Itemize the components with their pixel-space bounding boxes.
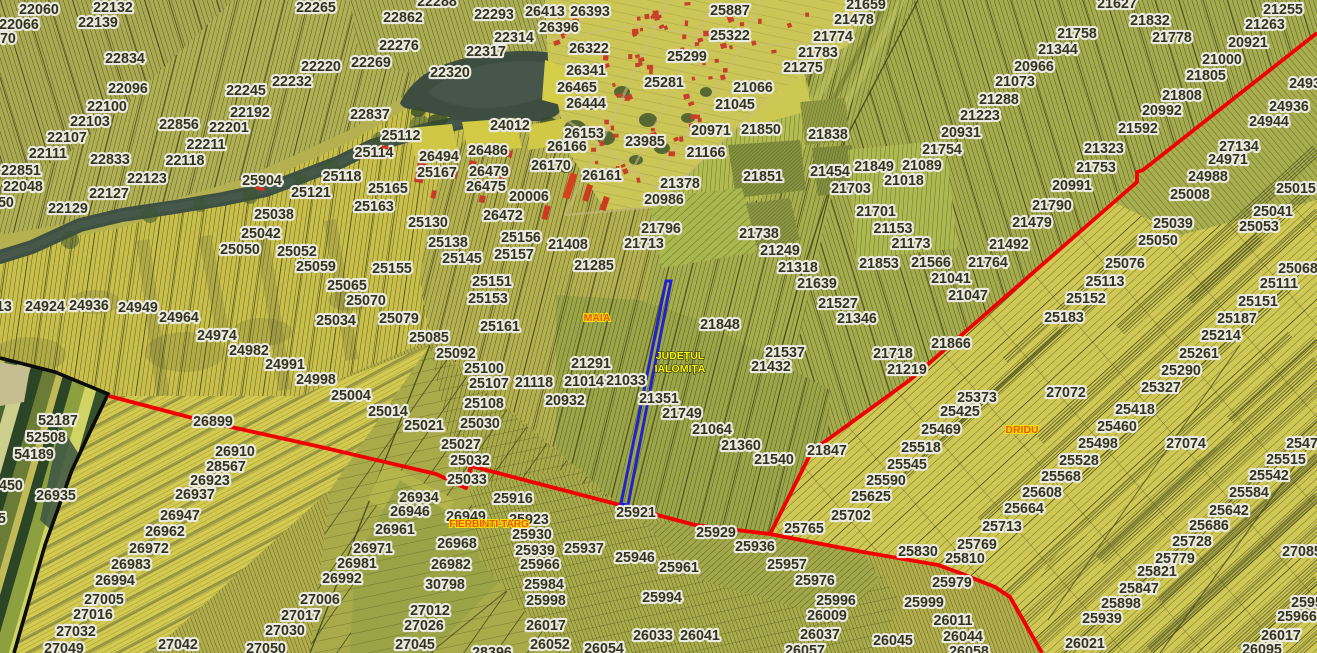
- svg-text:25418: 25418: [1115, 402, 1155, 418]
- svg-text:25929: 25929: [696, 525, 736, 541]
- svg-text:21118: 21118: [515, 375, 553, 391]
- svg-text:DRIDU: DRIDU: [1005, 424, 1038, 436]
- svg-text:25996: 25996: [816, 593, 856, 609]
- svg-text:26161: 26161: [582, 168, 622, 184]
- svg-text:26479: 26479: [469, 164, 509, 180]
- svg-text:25027: 25027: [441, 437, 481, 453]
- svg-text:22837: 22837: [350, 107, 390, 123]
- svg-text:26972: 26972: [129, 541, 169, 557]
- svg-text:22220: 22220: [301, 59, 341, 75]
- svg-text:26486: 26486: [468, 143, 508, 159]
- svg-text:22232: 22232: [272, 74, 312, 90]
- svg-text:25998: 25998: [526, 593, 566, 609]
- svg-text:25052: 25052: [277, 244, 317, 260]
- svg-text:21847: 21847: [807, 443, 847, 459]
- svg-text:22127: 22127: [89, 186, 129, 202]
- svg-text:25713: 25713: [982, 519, 1022, 535]
- svg-text:25821: 25821: [1137, 564, 1177, 580]
- svg-text:22111: 22111: [29, 146, 67, 162]
- svg-text:25590: 25590: [866, 473, 906, 489]
- svg-text:21249: 21249: [760, 243, 800, 259]
- svg-text:21764: 21764: [968, 255, 1008, 271]
- svg-text:25156: 25156: [501, 230, 541, 246]
- svg-text:24974: 24974: [197, 328, 237, 344]
- svg-text:24913: 24913: [0, 299, 12, 315]
- svg-text:22107: 22107: [47, 130, 87, 146]
- svg-text:22317: 22317: [466, 44, 506, 60]
- svg-text:22293: 22293: [474, 7, 514, 23]
- svg-text:21351: 21351: [639, 391, 679, 407]
- svg-text:25976: 25976: [795, 573, 835, 589]
- svg-text:25152: 25152: [1066, 291, 1106, 307]
- svg-text:25686: 25686: [1189, 518, 1229, 534]
- svg-text:26971: 26971: [353, 541, 393, 557]
- svg-text:24944: 24944: [1249, 114, 1289, 130]
- svg-text:25642: 25642: [1209, 503, 1249, 519]
- svg-text:26937: 26937: [175, 487, 215, 503]
- svg-text:27030: 27030: [265, 623, 305, 639]
- svg-text:25151: 25151: [472, 274, 512, 290]
- svg-text:21738: 21738: [739, 226, 779, 242]
- svg-text:22100: 22100: [87, 99, 127, 115]
- svg-text:24971: 24971: [1208, 152, 1248, 168]
- svg-text:27085: 27085: [1282, 544, 1317, 560]
- svg-text:25290: 25290: [1161, 363, 1201, 379]
- svg-text:21790: 21790: [1032, 198, 1072, 214]
- svg-text:22048: 22048: [3, 179, 43, 195]
- svg-text:24998: 24998: [296, 372, 336, 388]
- svg-text:21360: 21360: [721, 438, 761, 454]
- svg-text:25608: 25608: [1022, 485, 1062, 501]
- svg-text:20991: 20991: [1052, 178, 1092, 194]
- svg-text:20971: 20971: [691, 123, 731, 139]
- svg-text:26992: 26992: [322, 571, 362, 587]
- svg-text:21492: 21492: [989, 237, 1029, 253]
- svg-text:25034: 25034: [316, 313, 356, 329]
- svg-text:52187: 52187: [38, 413, 78, 429]
- svg-text:21778: 21778: [1152, 30, 1192, 46]
- svg-text:21478: 21478: [834, 12, 874, 28]
- svg-text:25163: 25163: [354, 199, 394, 215]
- svg-text:21838: 21838: [808, 127, 848, 143]
- svg-text:21018: 21018: [884, 173, 924, 189]
- svg-text:21832: 21832: [1130, 13, 1170, 29]
- svg-text:22060: 22060: [19, 2, 59, 18]
- svg-text:27005: 27005: [84, 592, 124, 608]
- svg-text:21479: 21479: [1012, 215, 1052, 231]
- svg-text:MAIA: MAIA: [584, 312, 611, 324]
- svg-text:21047: 21047: [948, 288, 988, 304]
- svg-text:20932: 20932: [545, 393, 585, 409]
- svg-text:21866: 21866: [931, 336, 971, 352]
- svg-text:25145: 25145: [442, 251, 482, 267]
- svg-text:24924: 24924: [25, 299, 65, 315]
- svg-text:21219: 21219: [887, 362, 927, 378]
- svg-text:27074: 27074: [1166, 436, 1206, 452]
- svg-text:22862: 22862: [383, 10, 423, 26]
- svg-text:22269: 22269: [351, 55, 391, 71]
- svg-text:25030: 25030: [460, 416, 500, 432]
- svg-text:26021: 26021: [1065, 636, 1105, 652]
- svg-text:21288: 21288: [979, 92, 1019, 108]
- svg-text:25625: 25625: [851, 489, 891, 505]
- svg-text:21527: 21527: [818, 296, 858, 312]
- svg-text:30798: 30798: [425, 577, 465, 593]
- svg-text:25887: 25887: [710, 3, 750, 19]
- svg-text:22276: 22276: [379, 38, 419, 54]
- svg-text:25966: 25966: [1277, 609, 1317, 625]
- svg-text:21275: 21275: [783, 60, 823, 76]
- svg-text:21045: 21045: [715, 97, 755, 113]
- svg-text:24949: 24949: [118, 300, 158, 316]
- svg-text:25469: 25469: [921, 422, 961, 438]
- svg-text:22211: 22211: [187, 137, 226, 153]
- svg-text:27016: 27016: [73, 607, 113, 623]
- svg-text:21808: 21808: [1162, 88, 1202, 104]
- svg-text:25157: 25157: [494, 247, 534, 263]
- svg-text:27049: 27049: [44, 641, 84, 653]
- svg-text:33450: 33450: [0, 478, 23, 494]
- svg-text:21285: 21285: [574, 258, 614, 274]
- svg-text:25151: 25151: [1238, 294, 1278, 310]
- svg-text:24982: 24982: [229, 343, 269, 359]
- svg-text:26475: 26475: [466, 179, 506, 195]
- svg-text:21805: 21805: [1186, 68, 1226, 84]
- svg-text:20992: 20992: [1142, 103, 1182, 119]
- svg-text:22118: 22118: [166, 153, 205, 169]
- svg-text:26044: 26044: [943, 629, 983, 645]
- svg-text:54189: 54189: [14, 447, 54, 463]
- svg-text:24936: 24936: [1269, 99, 1309, 115]
- svg-text:22070: 22070: [0, 31, 16, 47]
- svg-text:22096: 22096: [108, 81, 148, 97]
- svg-text:22856: 22856: [159, 117, 199, 133]
- svg-text:25664: 25664: [1004, 501, 1044, 517]
- svg-text:25167: 25167: [417, 165, 457, 181]
- svg-text:21774: 21774: [813, 29, 853, 45]
- svg-text:22851: 22851: [1, 163, 41, 179]
- svg-text:21318: 21318: [778, 260, 818, 276]
- svg-text:27045: 27045: [395, 637, 435, 653]
- svg-text:25070: 25070: [346, 293, 386, 309]
- svg-text:25999: 25999: [904, 595, 944, 611]
- svg-text:25059: 25059: [296, 259, 336, 275]
- svg-text:25702: 25702: [831, 508, 871, 524]
- svg-text:26041: 26041: [680, 628, 720, 644]
- svg-text:25155: 25155: [372, 261, 412, 277]
- svg-text:25327: 25327: [1141, 380, 1181, 396]
- svg-text:26444: 26444: [566, 96, 606, 112]
- svg-text:21753: 21753: [1076, 160, 1116, 176]
- svg-text:25076: 25076: [1105, 256, 1145, 272]
- svg-text:26472: 26472: [483, 208, 523, 224]
- svg-text:21033: 21033: [606, 373, 646, 389]
- svg-text:25528: 25528: [1059, 453, 1099, 469]
- svg-text:26946: 26946: [390, 504, 430, 520]
- svg-text:25299: 25299: [667, 49, 707, 65]
- svg-text:25542: 25542: [1249, 468, 1289, 484]
- svg-text:24964: 24964: [159, 310, 199, 326]
- svg-text:21153: 21153: [874, 221, 913, 237]
- svg-text:25425: 25425: [940, 404, 980, 420]
- svg-text:25038: 25038: [254, 207, 294, 223]
- svg-text:21454: 21454: [810, 164, 850, 180]
- svg-text:27032: 27032: [56, 624, 96, 640]
- svg-text:21592: 21592: [1118, 121, 1158, 137]
- svg-text:21255: 21255: [1263, 2, 1303, 18]
- svg-text:22123: 22123: [127, 171, 167, 187]
- svg-text:26910: 26910: [215, 444, 255, 460]
- svg-text:26095: 26095: [1242, 642, 1282, 653]
- svg-text:25033: 25033: [447, 472, 487, 488]
- svg-text:22833: 22833: [90, 152, 130, 168]
- svg-text:21566: 21566: [911, 255, 951, 271]
- svg-text:22139: 22139: [78, 15, 118, 31]
- svg-text:JUDEŢUL: JUDEŢUL: [656, 350, 705, 362]
- svg-text:25916: 25916: [493, 491, 533, 507]
- svg-text:25138: 25138: [428, 235, 468, 251]
- svg-text:20986: 20986: [644, 192, 684, 208]
- svg-text:25050: 25050: [1138, 233, 1178, 249]
- svg-text:27042: 27042: [158, 637, 198, 653]
- svg-text:25121: 25121: [291, 185, 331, 201]
- svg-text:25460: 25460: [1097, 419, 1137, 435]
- svg-text:25050: 25050: [220, 242, 260, 258]
- svg-text:20931: 20931: [941, 125, 981, 141]
- svg-text:21703: 21703: [831, 181, 871, 197]
- svg-text:26994: 26994: [95, 573, 135, 589]
- svg-text:22265: 22265: [296, 0, 336, 16]
- svg-text:21718: 21718: [873, 346, 913, 362]
- svg-text:25085: 25085: [409, 330, 449, 346]
- svg-text:21378: 21378: [660, 176, 700, 192]
- svg-text:25130: 25130: [408, 215, 448, 231]
- svg-text:25957: 25957: [1291, 595, 1317, 611]
- svg-text:25015: 25015: [1276, 181, 1316, 197]
- svg-text:26955: 26955: [0, 511, 6, 527]
- svg-text:21432: 21432: [751, 359, 791, 375]
- svg-text:23985: 23985: [625, 134, 665, 150]
- svg-text:26037: 26037: [800, 627, 840, 643]
- svg-text:21041: 21041: [931, 271, 971, 287]
- svg-text:22850: 22850: [0, 195, 14, 211]
- svg-text:25118: 25118: [323, 169, 362, 185]
- svg-text:25041: 25041: [1253, 204, 1293, 220]
- svg-text:27012: 27012: [410, 603, 450, 619]
- svg-text:25039: 25039: [1153, 216, 1193, 232]
- svg-text:26961: 26961: [375, 522, 415, 538]
- svg-text:25214: 25214: [1201, 328, 1241, 344]
- svg-text:25515: 25515: [1266, 452, 1306, 468]
- svg-text:24936: 24936: [69, 298, 109, 314]
- svg-text:21851: 21851: [743, 169, 783, 185]
- svg-text:21000: 21000: [1202, 52, 1242, 68]
- svg-text:25068: 25068: [1278, 261, 1317, 277]
- svg-text:21014: 21014: [564, 374, 604, 390]
- svg-text:21408: 21408: [548, 237, 588, 253]
- svg-text:22129: 22129: [48, 201, 88, 217]
- svg-text:21758: 21758: [1057, 26, 1097, 42]
- svg-text:22201: 22201: [209, 120, 249, 136]
- svg-text:21639: 21639: [797, 276, 837, 292]
- svg-text:26054: 26054: [584, 641, 624, 653]
- svg-text:25979: 25979: [932, 575, 972, 591]
- svg-text:21291: 21291: [571, 356, 611, 372]
- svg-text:26322: 26322: [569, 41, 609, 57]
- svg-text:21848: 21848: [700, 317, 740, 333]
- svg-text:25092: 25092: [436, 346, 476, 362]
- svg-text:22245: 22245: [226, 83, 266, 99]
- svg-text:21344: 21344: [1038, 42, 1078, 58]
- svg-text:25984: 25984: [524, 577, 564, 593]
- svg-text:21540: 21540: [754, 452, 794, 468]
- svg-text:25939: 25939: [1082, 611, 1122, 627]
- svg-text:27006: 27006: [300, 592, 340, 608]
- svg-text:25961: 25961: [659, 560, 699, 576]
- svg-text:26983: 26983: [111, 557, 151, 573]
- svg-text:25474: 25474: [1286, 436, 1317, 452]
- svg-text:25261: 25261: [1179, 346, 1219, 362]
- svg-text:25281: 25281: [644, 75, 684, 91]
- svg-text:26341: 26341: [566, 63, 606, 79]
- svg-text:25921: 25921: [616, 505, 656, 521]
- svg-text:21066: 21066: [733, 80, 773, 96]
- svg-text:22192: 22192: [230, 105, 270, 121]
- svg-text:26413: 26413: [525, 4, 565, 20]
- svg-text:20006: 20006: [509, 189, 549, 205]
- svg-text:21796: 21796: [641, 221, 681, 237]
- svg-text:21754: 21754: [922, 142, 962, 158]
- svg-text:26935: 26935: [36, 488, 76, 504]
- svg-text:25545: 25545: [887, 457, 927, 473]
- svg-text:FIERBINTI-TARG: FIERBINTI-TARG: [449, 518, 529, 530]
- svg-text:25161: 25161: [480, 319, 520, 335]
- svg-text:26947: 26947: [160, 508, 200, 524]
- svg-text:IALOMIŢA: IALOMIŢA: [655, 363, 706, 375]
- svg-text:25108: 25108: [464, 396, 504, 412]
- svg-text:25584: 25584: [1229, 485, 1269, 501]
- svg-text:26494: 26494: [419, 149, 459, 165]
- svg-text:26393: 26393: [570, 4, 610, 20]
- svg-text:21064: 21064: [692, 422, 732, 438]
- svg-text:27050: 27050: [246, 641, 286, 653]
- svg-text:25014: 25014: [368, 404, 408, 420]
- svg-text:21323: 21323: [1084, 141, 1124, 157]
- svg-text:25946: 25946: [615, 550, 655, 566]
- svg-text:25008: 25008: [1170, 187, 1210, 203]
- svg-text:21713: 21713: [624, 236, 664, 252]
- svg-text:27017: 27017: [281, 608, 321, 624]
- svg-text:21263: 21263: [1245, 17, 1285, 33]
- svg-text:21783: 21783: [798, 45, 838, 61]
- svg-text:26057: 26057: [785, 643, 825, 653]
- svg-text:26011: 26011: [934, 613, 973, 629]
- svg-text:25937: 25937: [564, 541, 604, 557]
- svg-text:22834: 22834: [105, 51, 145, 67]
- svg-text:21073: 21073: [995, 74, 1035, 90]
- svg-text:21166: 21166: [687, 145, 726, 161]
- svg-text:21089: 21089: [902, 158, 942, 174]
- svg-text:25079: 25079: [379, 311, 419, 327]
- svg-text:25847: 25847: [1119, 581, 1159, 597]
- svg-text:25957: 25957: [767, 557, 807, 573]
- svg-text:25498: 25498: [1078, 436, 1118, 452]
- svg-text:25187: 25187: [1217, 311, 1257, 327]
- svg-text:25100: 25100: [464, 361, 504, 377]
- svg-text:25568: 25568: [1041, 469, 1081, 485]
- svg-text:25966: 25966: [520, 557, 560, 573]
- svg-text:26017: 26017: [526, 618, 566, 634]
- svg-text:24936: 24936: [1289, 76, 1317, 92]
- svg-text:22288: 22288: [417, 0, 457, 10]
- svg-text:25032: 25032: [450, 453, 490, 469]
- svg-text:21173: 21173: [892, 236, 931, 252]
- svg-text:25042: 25042: [241, 226, 281, 242]
- svg-text:26170: 26170: [531, 158, 571, 174]
- svg-text:25728: 25728: [1172, 534, 1212, 550]
- svg-text:21223: 21223: [960, 108, 1000, 124]
- svg-text:25021: 25021: [404, 418, 444, 434]
- svg-text:25765: 25765: [784, 521, 824, 537]
- svg-text:26396: 26396: [539, 20, 579, 36]
- svg-text:25183: 25183: [1044, 310, 1084, 326]
- svg-text:25810: 25810: [945, 551, 985, 567]
- svg-text:26982: 26982: [431, 557, 471, 573]
- svg-text:25004: 25004: [331, 388, 371, 404]
- svg-text:52508: 52508: [26, 430, 66, 446]
- svg-text:26166: 26166: [547, 139, 587, 155]
- svg-text:26465: 26465: [557, 80, 597, 96]
- svg-text:22132: 22132: [93, 0, 133, 16]
- svg-text:25107: 25107: [469, 376, 509, 392]
- svg-text:21346: 21346: [837, 311, 877, 327]
- svg-text:25936: 25936: [735, 539, 775, 555]
- svg-text:27026: 27026: [404, 618, 444, 634]
- svg-text:25111: 25111: [1260, 276, 1298, 292]
- svg-text:27072: 27072: [1046, 385, 1086, 401]
- svg-text:21853: 21853: [859, 256, 899, 272]
- svg-text:25065: 25065: [327, 278, 367, 294]
- svg-text:25898: 25898: [1101, 596, 1141, 612]
- svg-text:25165: 25165: [368, 181, 408, 197]
- svg-text:26009: 26009: [807, 608, 847, 624]
- svg-text:25904: 25904: [242, 173, 282, 189]
- svg-text:26033: 26033: [633, 628, 673, 644]
- svg-text:25053: 25053: [1239, 219, 1279, 235]
- svg-text:24988: 24988: [1188, 169, 1228, 185]
- svg-text:26962: 26962: [145, 524, 185, 540]
- svg-text:21850: 21850: [741, 122, 781, 138]
- svg-text:26052: 26052: [530, 637, 570, 653]
- svg-text:20921: 20921: [1228, 35, 1268, 51]
- svg-text:21749: 21749: [662, 406, 702, 422]
- svg-text:25153: 25153: [468, 291, 508, 307]
- svg-text:26968: 26968: [437, 536, 477, 552]
- svg-text:26899: 26899: [193, 414, 233, 430]
- svg-text:26045: 26045: [873, 633, 913, 649]
- svg-text:26058: 26058: [949, 644, 989, 653]
- svg-text:22320: 22320: [430, 65, 470, 81]
- svg-text:24012: 24012: [490, 118, 530, 134]
- svg-text:25322: 25322: [710, 28, 750, 44]
- svg-text:25112: 25112: [382, 128, 421, 144]
- svg-text:21701: 21701: [856, 204, 896, 220]
- svg-text:21627: 21627: [1097, 0, 1137, 12]
- svg-text:25113: 25113: [1086, 274, 1125, 290]
- svg-text:25518: 25518: [901, 440, 941, 456]
- svg-text:20966: 20966: [1014, 59, 1054, 75]
- svg-text:25830: 25830: [898, 544, 938, 560]
